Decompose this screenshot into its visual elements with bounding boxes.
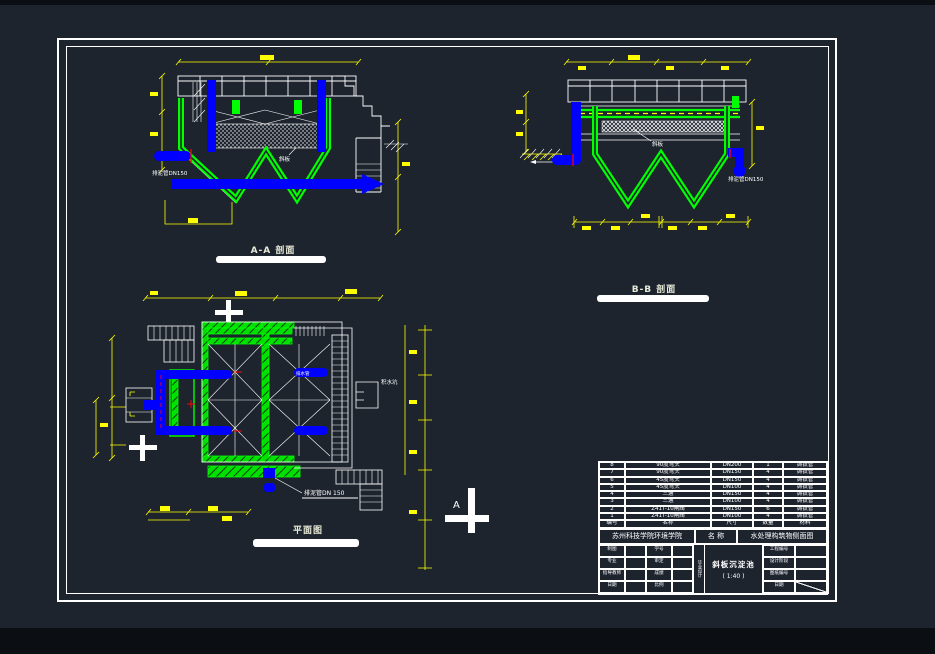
plan-underline [253,539,359,547]
table-cell: 90度弯头 [625,469,711,476]
table-cell: 铸铁管 [783,462,827,469]
table-cell: 4 [753,498,783,505]
table-cell: DN150 [711,477,753,484]
table-cell: 45度弯头 [625,477,711,484]
section-b-title: B-B 剖面 [598,282,710,295]
sludge-pipe-label: 排泥管DN150 [152,169,188,177]
section-a-view: 排泥管DN150 斜板 [148,52,418,247]
structure-lines [520,80,746,207]
table-cell: DN150 [711,491,753,498]
section-marker-letter: A [453,500,460,511]
table-cell: Z41T-10闸阀 [625,513,711,520]
table-cell: 6 [753,506,783,513]
table-cell: DN100 [711,498,753,505]
info-value [625,545,646,557]
table-cell: 6 [599,477,625,484]
table-cell: 三通 [625,491,711,498]
plate-label: 斜板 [279,155,291,163]
table-cell: 铸铁管 [783,498,827,505]
table-cell: 5 [599,484,625,491]
signature-block: 制图 学号 专业 审定 指导教师 成绩 日期 比例 毕业设计 斜板沉淀池 ( 1… [598,545,828,595]
info-value [672,569,693,581]
table-cell: 铸铁管 [783,513,827,520]
table-cell: DN100 [711,513,753,520]
table-cell: 铸铁管 [783,477,827,484]
info-label: 成绩 [646,569,672,581]
inlet-marks [130,392,135,416]
table-cell: 三通 [625,498,711,505]
drawing-name: 水处理构筑物侧面图 [737,529,827,544]
top-margin [0,0,935,5]
table-cell: 90度弯头 [625,462,711,469]
info-value [625,557,646,569]
plate-label: 斜板 [652,140,664,148]
info-label: 学号 [646,545,672,557]
bottom-margin [0,628,935,654]
table-header-cell: 尺寸 [711,520,753,527]
cad-canvas: { "page": {"bg": "#1d242e", "sheet_borde… [0,0,935,654]
section-b-view: 排泥管DN150 斜板 [516,54,801,249]
school-name: 苏州科技学院环境学院 [599,529,695,544]
table-header-cell: 材料 [783,520,827,527]
table-cell: 3 [599,498,625,505]
section-a-title: A-A 剖面 [218,243,328,256]
table-cell: 4 [753,469,783,476]
sludge-pipe-label: 排泥管DN 150 [304,489,345,497]
plan-title: 平面图 [258,523,358,536]
table-cell: DN150 [711,506,753,513]
table-cell: 4 [753,491,783,498]
table-cell: 铸铁管 [783,469,827,476]
project-title-cell: 斜板沉淀池 ( 1:40 ) [705,545,762,594]
info-label: 工程编号 [763,545,795,557]
table-cell: Z41T-10闸阀 [625,506,711,513]
table-cell: 7 [599,469,625,476]
info-value [795,545,827,557]
hopper-outline [578,96,740,204]
table-cell: 铸铁管 [783,491,827,498]
table-cell: DN150 [711,469,753,476]
info-label: 审定 [646,557,672,569]
table-cell: 1 [753,462,783,469]
table-header-cell: 编号 [599,520,625,527]
info-value-diagonal [795,581,827,593]
project-title: 斜板沉淀池 [712,559,755,570]
table-cell: 4 [753,477,783,484]
info-label: 比例 [646,581,672,593]
info-label: 制图 [599,545,625,557]
section-a-underline [216,256,326,263]
info-label: 图纸编号 [763,569,795,581]
table-header-cell: 名称 [625,520,711,527]
name-row: 苏州科技学院环境学院 名 称 水处理构筑物侧面图 [598,529,828,545]
table-cell: DN200 [711,462,753,469]
info-label: 专业 [599,557,625,569]
table-cell: DN100 [711,484,753,491]
sludge-pipe-label: 排泥管DN150 [728,175,764,183]
drain-pipe-label: 排水管 [296,370,310,377]
inclined-plate-zone [602,121,726,132]
sump-pit-label: 积水坑 [381,378,398,386]
table-cell: 2 [599,506,625,513]
info-right-table: 工程编号 设计阶段 图纸编号 日期 [762,545,827,594]
table-cell: 8 [599,462,625,469]
parts-table: 8 90度弯头 DN200 1 铸铁管 7 90度弯头 DN150 4 铸铁管 … [598,461,828,529]
table-cell: 4 [753,484,783,491]
table-cell: 45度弯头 [625,484,711,491]
info-value [672,581,693,593]
info-value [625,581,646,593]
table-cell: 铸铁管 [783,506,827,513]
info-value [795,569,827,581]
inclined-plate-zone [210,124,320,148]
info-label: 指导教师 [599,569,625,581]
section-marker-a: A [440,486,492,538]
project-scale: ( 1:40 ) [723,573,745,580]
name-label: 名 称 [695,529,737,544]
section-cut-marker-left [129,435,157,461]
info-label: 日期 [763,581,795,593]
info-left-table: 制图 学号 专业 审定 指导教师 成绩 日期 比例 [599,545,693,594]
title-block: 8 90度弯头 DN200 1 铸铁管 7 90度弯头 DN150 4 铸铁管 … [598,461,828,595]
info-label: 日期 [599,581,625,593]
section-b-underline [597,295,709,302]
info-label: 设计阶段 [763,557,795,569]
table-cell: 1 [599,513,625,520]
info-value [625,569,646,581]
table-header-cell: 数量 [753,520,783,527]
table-cell: 4 [753,513,783,520]
vertical-label: 毕业设计 [693,545,705,594]
info-value [672,557,693,569]
info-value [672,545,693,557]
table-cell: 铸铁管 [783,484,827,491]
info-value [795,557,827,569]
table-cell: 4 [599,491,625,498]
